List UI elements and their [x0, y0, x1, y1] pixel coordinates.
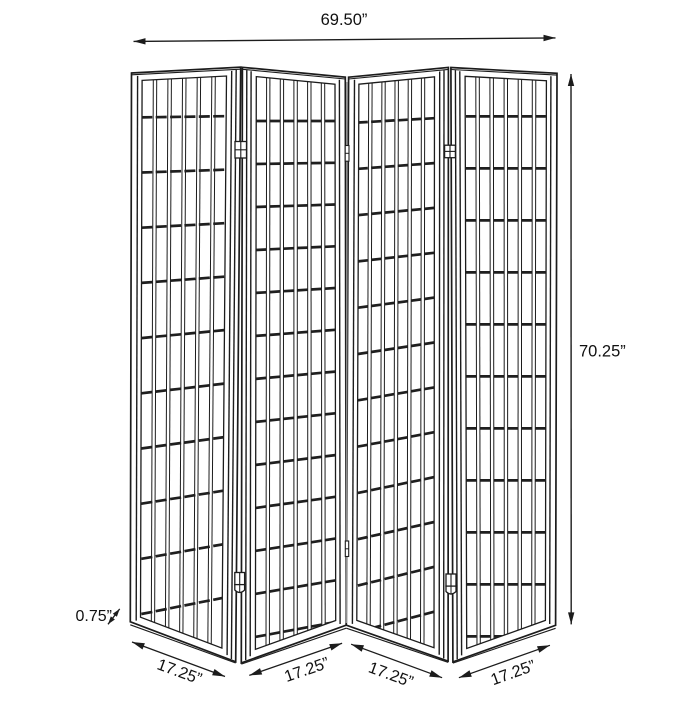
svg-text:70.25”: 70.25”: [579, 343, 626, 361]
svg-text:0.75”: 0.75”: [76, 608, 112, 625]
svg-text:69.50”: 69.50”: [321, 11, 368, 29]
